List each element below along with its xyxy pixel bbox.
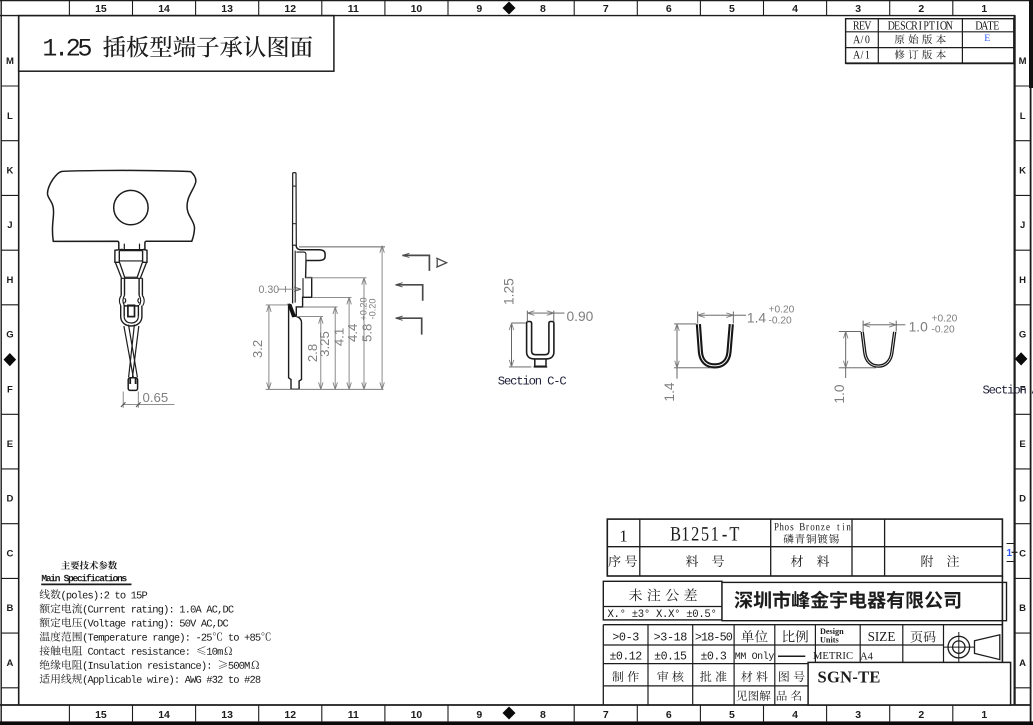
svg-text:-0.20: -0.20 (368, 299, 378, 320)
svg-text:3: 3 (855, 709, 861, 721)
svg-text:9: 9 (476, 709, 482, 721)
svg-text:12: 12 (284, 709, 296, 721)
svg-text:K: K (1019, 165, 1026, 176)
svg-text:1: 1 (981, 709, 987, 721)
svg-text:D: D (6, 494, 13, 505)
svg-text:M: M (1019, 56, 1027, 67)
svg-text:13: 13 (221, 709, 233, 721)
svg-text:>3-18: >3-18 (654, 631, 688, 645)
svg-text:J: J (7, 220, 12, 231)
svg-text:5: 5 (729, 3, 735, 15)
svg-text:2: 2 (918, 709, 924, 721)
svg-text:F: F (7, 384, 13, 395)
svg-text:>0-3: >0-3 (612, 631, 639, 645)
svg-text:8: 8 (540, 3, 546, 15)
svg-text:+0.20: +0.20 (932, 314, 958, 325)
svg-text:K: K (6, 165, 13, 176)
svg-text:7: 7 (603, 3, 609, 15)
svg-text:A4: A4 (860, 651, 874, 662)
svg-text:2: 2 (918, 3, 924, 15)
svg-text:6: 6 (666, 709, 672, 721)
svg-text:14: 14 (158, 3, 170, 15)
svg-text:1.0: 1.0 (909, 320, 929, 335)
svg-text:C: C (1019, 548, 1026, 559)
svg-text:12: 12 (284, 3, 296, 15)
svg-text:>18-50: >18-50 (695, 631, 733, 645)
svg-text:6: 6 (666, 3, 672, 15)
svg-text:1.25: 1.25 (501, 278, 516, 305)
svg-text:X.° ±3° X.X° ±0.5°: X.° ±3° X.X° ±0.5° (608, 609, 717, 621)
svg-text:METRIC: METRIC (813, 651, 853, 662)
svg-text:1.4: 1.4 (747, 311, 767, 326)
svg-text:L: L (7, 111, 13, 122)
svg-text:1: 1 (1007, 548, 1013, 559)
svg-text:4: 4 (792, 709, 798, 721)
svg-text:4.1: 4.1 (331, 328, 346, 346)
svg-text:3: 3 (855, 3, 861, 15)
svg-text:14: 14 (158, 709, 170, 721)
svg-text:B: B (1019, 603, 1026, 614)
svg-text:15: 15 (95, 709, 107, 721)
svg-text:±0.15: ±0.15 (654, 651, 687, 664)
svg-text:H: H (1019, 275, 1026, 286)
svg-text:11: 11 (348, 709, 359, 721)
svg-text:-0.20: -0.20 (932, 325, 956, 336)
svg-text:A: A (6, 658, 13, 669)
svg-text:MM Only: MM Only (735, 651, 775, 663)
svg-text:3.25: 3.25 (317, 331, 332, 357)
svg-text:15: 15 (95, 3, 107, 15)
svg-text:5: 5 (729, 709, 735, 721)
svg-text:9: 9 (476, 3, 482, 15)
svg-text:-0.20: -0.20 (769, 316, 793, 327)
svg-text:B: B (6, 603, 13, 614)
svg-text:1: 1 (619, 527, 628, 546)
svg-text:SIZE: SIZE (868, 629, 896, 644)
svg-text:1: 1 (981, 3, 987, 15)
svg-text:C: C (6, 548, 13, 559)
svg-text:7: 7 (603, 709, 609, 721)
svg-text:E: E (1019, 439, 1025, 450)
svg-text:M: M (6, 56, 14, 67)
svg-text:1.0: 1.0 (832, 384, 847, 404)
svg-text:0.90: 0.90 (567, 309, 594, 324)
svg-text:±0.3: ±0.3 (700, 651, 726, 664)
svg-text:G: G (6, 330, 13, 341)
svg-text:E: E (7, 439, 13, 450)
svg-text:+0.20: +0.20 (769, 305, 795, 316)
svg-text:E: E (984, 33, 990, 44)
svg-text:5.8: 5.8 (360, 324, 375, 342)
svg-text:1.4: 1.4 (662, 382, 677, 402)
svg-text:3.2: 3.2 (250, 340, 265, 358)
svg-text:H: H (6, 275, 13, 286)
svg-text:G: G (1019, 330, 1026, 341)
svg-text:A: A (1019, 658, 1026, 669)
svg-text:0.30: 0.30 (259, 284, 280, 296)
svg-text:11: 11 (348, 3, 359, 15)
svg-text:J: J (1020, 220, 1025, 231)
svg-text:4: 4 (792, 3, 798, 15)
svg-text:Units: Units (820, 636, 839, 645)
svg-text:SGN-TE: SGN-TE (818, 668, 881, 687)
svg-text:Section A: Section A (983, 384, 1033, 398)
svg-text:10: 10 (411, 709, 423, 721)
svg-text:0.65: 0.65 (143, 390, 169, 405)
svg-text:L: L (1020, 111, 1026, 122)
svg-text:10: 10 (411, 3, 423, 15)
svg-text:4.4: 4.4 (345, 324, 360, 342)
svg-text:13: 13 (221, 3, 233, 15)
svg-text:Section C-C: Section C-C (498, 375, 567, 389)
svg-text:±0.12: ±0.12 (609, 651, 642, 664)
svg-text:D: D (1019, 494, 1026, 505)
svg-text:8: 8 (540, 709, 546, 721)
